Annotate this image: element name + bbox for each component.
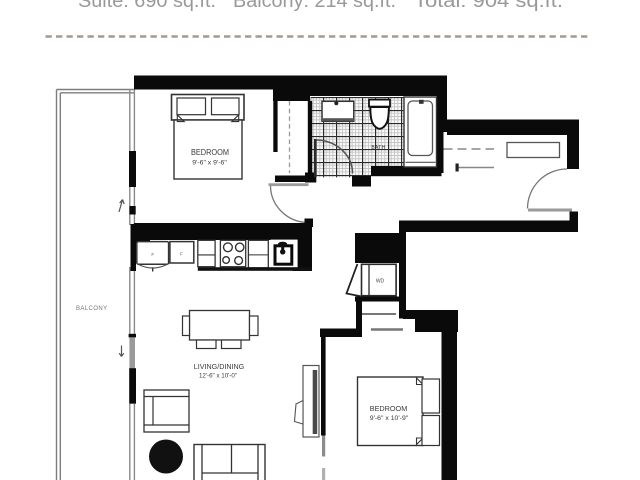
svg-text:F: F: [180, 251, 183, 256]
svg-text:F: F: [151, 252, 154, 257]
svg-text:BEDROOM: BEDROOM: [370, 404, 408, 413]
svg-text:BEDROOM: BEDROOM: [191, 148, 229, 157]
svg-text:9'-6" x 10'-9": 9'-6" x 10'-9": [370, 415, 409, 422]
svg-text:Total: 904 sq.ft.: Total: 904 sq.ft.: [414, 0, 563, 12]
svg-text:12'-6" x 10'-0": 12'-6" x 10'-0": [199, 373, 237, 380]
svg-text:BALCONY: BALCONY: [76, 306, 107, 312]
svg-text:LIVING/DINING: LIVING/DINING: [194, 362, 245, 371]
svg-text:Suite: 690 sq.ft.: Suite: 690 sq.ft.: [78, 0, 216, 12]
svg-text:Balcony: 214 sq.ft.: Balcony: 214 sq.ft.: [233, 0, 396, 12]
svg-text:WD: WD: [376, 279, 385, 285]
svg-text:9'-6" x 9'-6": 9'-6" x 9'-6": [192, 160, 227, 167]
svg-text:BATH: BATH: [371, 145, 385, 151]
